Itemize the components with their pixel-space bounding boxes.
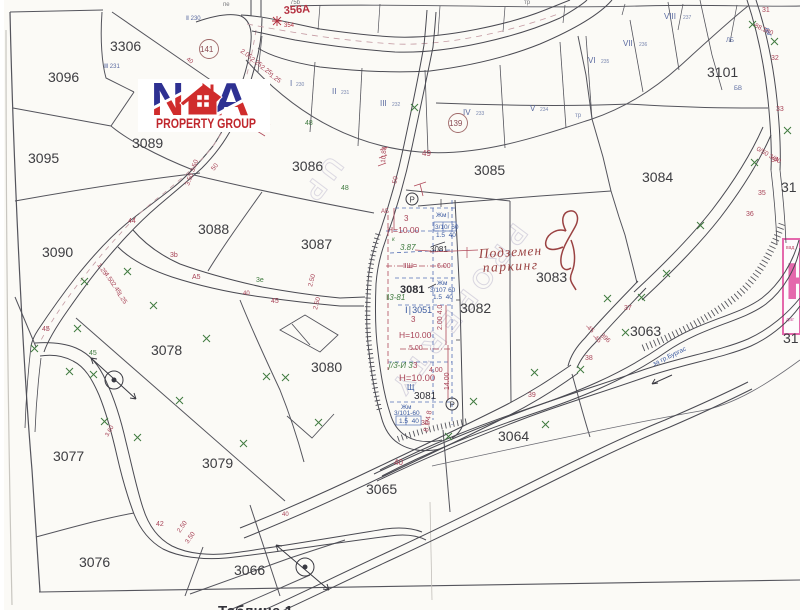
svg-text:Н: Н: [785, 253, 800, 311]
svg-text:на имоти: на имоти: [438, 605, 492, 610]
svg-text:БВ: БВ: [734, 86, 742, 92]
svg-text:Жм: Жм: [437, 280, 448, 287]
svg-text:VI: VI: [588, 56, 596, 65]
svg-text:3е: 3е: [256, 277, 264, 284]
svg-text:IV: IV: [463, 108, 471, 117]
svg-text:H=10.00: H=10.00: [399, 330, 432, 340]
svg-text:VIII: VIII: [664, 12, 676, 21]
svg-text:3089: 3089: [132, 135, 163, 151]
svg-text:паркинг: паркинг: [482, 257, 538, 275]
svg-text:вад: вад: [786, 245, 794, 251]
svg-text:3086: 3086: [292, 158, 323, 174]
svg-text:34: 34: [771, 157, 779, 164]
svg-text:38: 38: [585, 355, 593, 362]
svg-text:3/101-60: 3/101-60: [394, 410, 420, 417]
svg-text:232: 232: [392, 102, 401, 108]
svg-text:3082: 3082: [460, 300, 491, 316]
svg-text:230: 230: [296, 82, 305, 88]
svg-text:II: II: [332, 87, 336, 96]
svg-text:Ⅰ∣3051: Ⅰ∣3051: [405, 305, 432, 315]
svg-text:АБ: АБ: [381, 209, 389, 215]
svg-text:45: 45: [89, 350, 97, 357]
svg-text:354: 354: [284, 23, 295, 29]
svg-text:тр: тр: [575, 113, 582, 119]
svg-text:V: V: [530, 104, 536, 113]
svg-text:3065: 3065: [366, 481, 397, 497]
svg-text:3101: 3101: [707, 64, 738, 80]
svg-text:Жм∣: Жм∣: [436, 211, 450, 219]
svg-text:III: III: [380, 99, 387, 108]
svg-text:ЛБ: ЛБ: [726, 38, 734, 44]
svg-text:H=10.00: H=10.00: [387, 225, 420, 235]
svg-text:237: 237: [683, 15, 692, 21]
svg-text:40: 40: [394, 458, 403, 467]
svg-text:3076: 3076: [79, 554, 110, 570]
svg-text:PROPERTY GROUP: PROPERTY GROUP: [156, 115, 256, 131]
svg-text:3080: 3080: [311, 359, 342, 375]
svg-text:1.5 40: 1.5 40: [436, 232, 456, 239]
svg-text:3b: 3b: [170, 252, 178, 259]
svg-text:36: 36: [421, 420, 429, 427]
svg-text:233: 233: [476, 111, 485, 117]
svg-text:3087: 3087: [301, 236, 332, 252]
svg-text:40: 40: [282, 512, 289, 518]
svg-text:1.5 40: 1.5 40: [433, 294, 453, 301]
svg-text:36: 36: [746, 211, 754, 218]
svg-text:6.00: 6.00: [437, 263, 451, 270]
svg-text:45: 45: [271, 298, 279, 305]
svg-text:3096: 3096: [48, 69, 79, 85]
svg-text:234: 234: [540, 107, 549, 113]
svg-text:ⅡШ=: ⅡШ=: [403, 263, 417, 270]
svg-text:40: 40: [243, 291, 250, 297]
svg-text:35: 35: [758, 190, 766, 197]
svg-text:48: 48: [341, 185, 349, 192]
svg-text:тр: тр: [524, 0, 531, 6]
svg-text:3077: 3077: [53, 448, 84, 464]
svg-text:3081: 3081: [430, 245, 448, 254]
svg-text:Ⅲ 231: Ⅲ 231: [104, 64, 120, 70]
svg-text:42: 42: [156, 521, 164, 528]
svg-text:236: 236: [639, 42, 648, 48]
svg-text:3085: 3085: [474, 162, 505, 178]
svg-text:3081: 3081: [400, 284, 424, 296]
svg-text:3306: 3306: [110, 38, 141, 54]
svg-text:33: 33: [776, 106, 784, 113]
svg-text:231: 231: [341, 90, 350, 96]
svg-text:P: P: [410, 196, 415, 205]
svg-text:A5: A5: [192, 274, 201, 281]
svg-text:3095: 3095: [28, 150, 59, 166]
svg-text:∣/3-И 3: ∣/3-И 3: [387, 361, 413, 370]
svg-text:3: 3: [413, 361, 418, 370]
svg-text:3066: 3066: [234, 562, 265, 578]
svg-text:3: 3: [411, 315, 416, 324]
svg-text:3: 3: [404, 214, 409, 223]
svg-text:45: 45: [42, 326, 50, 333]
svg-text:3088: 3088: [198, 221, 229, 237]
svg-text:VII: VII: [623, 39, 633, 48]
svg-text:3090: 3090: [42, 244, 73, 260]
svg-text:37: 37: [624, 305, 632, 312]
svg-text:3064: 3064: [498, 428, 529, 444]
svg-text:31: 31: [781, 179, 797, 195]
svg-text:H=10.00: H=10.00: [399, 373, 435, 384]
svg-text:2.00 4.0: 2.00 4.0: [437, 305, 444, 330]
svg-text:75b: 75b: [290, 0, 301, 6]
svg-text:3/107 60: 3/107 60: [430, 287, 456, 294]
svg-text:3.87: 3.87: [400, 243, 416, 252]
svg-text:3079: 3079: [202, 455, 233, 471]
svg-text:48: 48: [305, 120, 313, 127]
svg-text:3081: 3081: [414, 391, 437, 402]
svg-text:Таблица 1: Таблица 1: [218, 603, 293, 610]
svg-text:139: 139: [449, 119, 463, 128]
svg-text:5.00: 5.00: [409, 345, 423, 352]
svg-text:44: 44: [128, 218, 136, 225]
svg-text:32: 32: [771, 55, 779, 62]
svg-text:3/10/ 60: 3/10/ 60: [435, 224, 459, 231]
svg-text:31: 31: [762, 7, 770, 14]
svg-text:1.5 40: 1.5 40: [399, 418, 419, 425]
svg-text:49: 49: [422, 149, 431, 158]
svg-text:3063: 3063: [630, 323, 661, 339]
svg-text:235: 235: [601, 59, 610, 65]
svg-text:3078: 3078: [151, 342, 182, 358]
svg-text:31: 31: [783, 330, 799, 346]
svg-text:Ⅱ 230: Ⅱ 230: [186, 16, 201, 22]
svg-text:I: I: [290, 79, 292, 88]
svg-text:P: P: [450, 401, 455, 410]
svg-text:39: 39: [528, 392, 536, 399]
svg-text:3083: 3083: [536, 269, 567, 285]
svg-text:пе: пе: [223, 2, 230, 8]
svg-text:141: 141: [200, 45, 214, 54]
svg-text:14.00: 14.00: [444, 372, 451, 390]
svg-text:3084: 3084: [642, 169, 673, 185]
